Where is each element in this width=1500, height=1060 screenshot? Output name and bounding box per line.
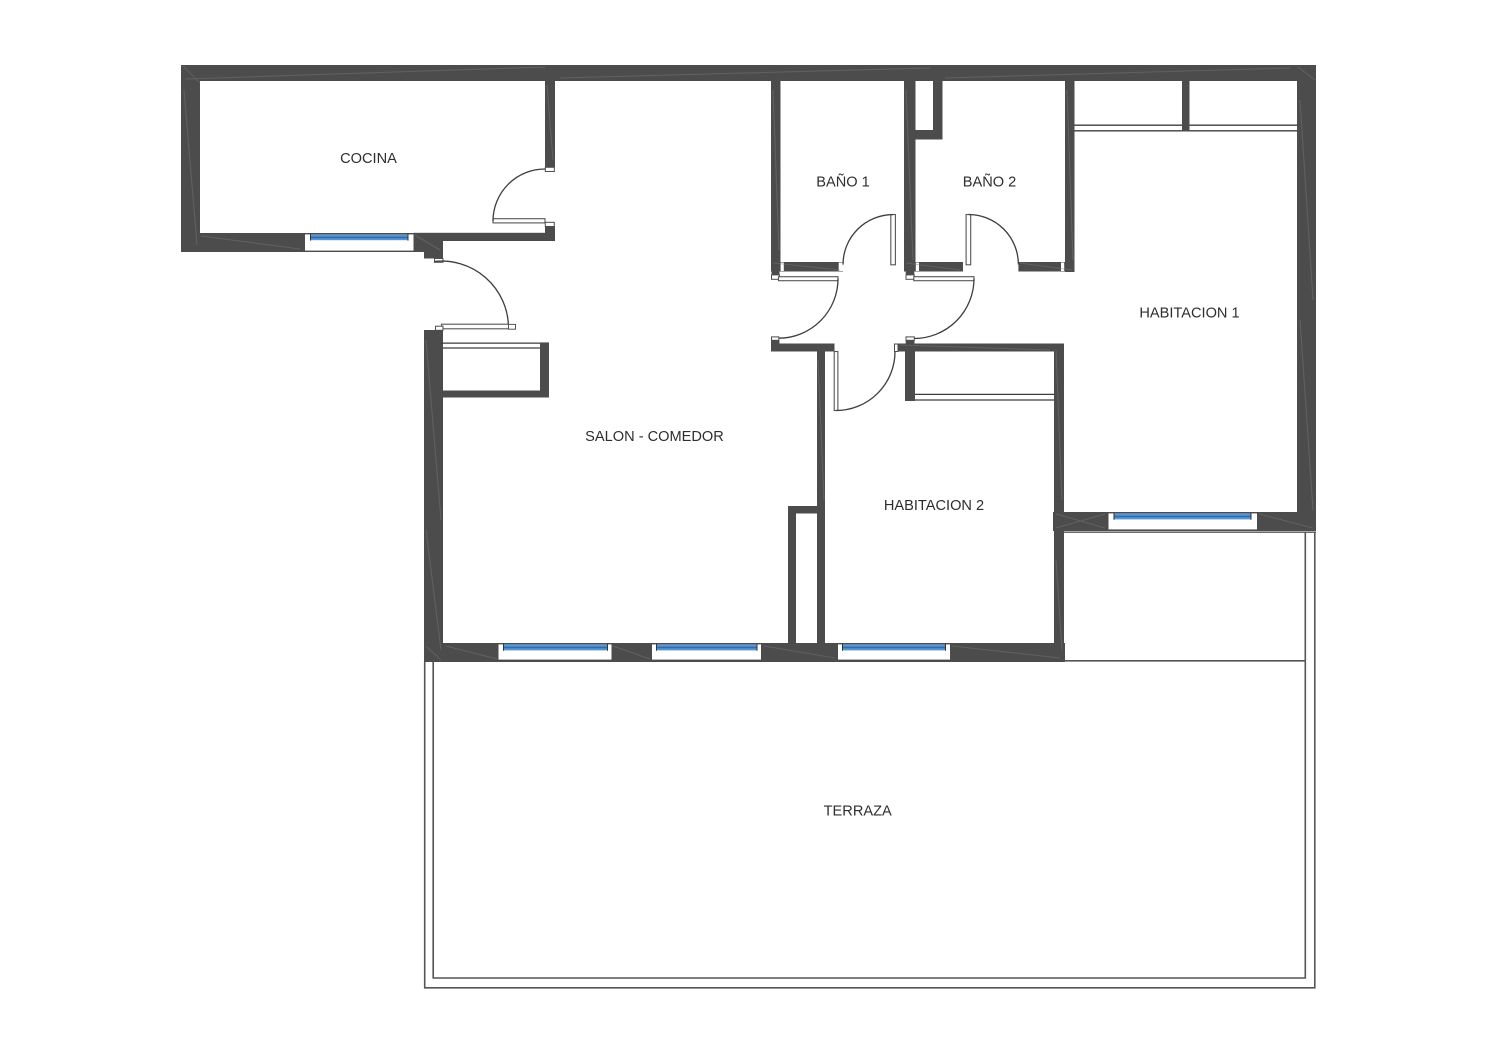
svg-text:TERRAZA: TERRAZA xyxy=(824,803,892,819)
svg-text:BAÑO 2: BAÑO 2 xyxy=(963,173,1017,190)
svg-text:COCINA: COCINA xyxy=(340,151,397,167)
svg-text:SALON - COMEDOR: SALON - COMEDOR xyxy=(585,429,724,445)
svg-text:HABITACION 2: HABITACION 2 xyxy=(884,498,984,514)
svg-text:HABITACION 1: HABITACION 1 xyxy=(1139,306,1239,322)
svg-text:BAÑO 1: BAÑO 1 xyxy=(816,173,870,190)
